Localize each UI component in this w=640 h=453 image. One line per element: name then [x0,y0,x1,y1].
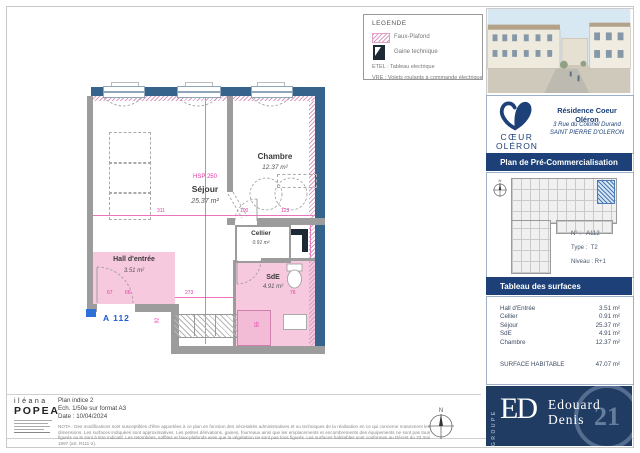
unit-info-label: Type : [571,245,587,251]
ed-monogram: ED [500,394,536,424]
titleblock-separator [7,394,481,395]
unit-info-value: A112 [586,231,600,237]
gaine-technique-legend-icon [373,45,385,60]
dim-label: 123 [281,209,289,214]
surfaces-banner: Tableau des surfaces [486,277,632,295]
cabinet-divider [194,314,195,336]
dimension-line [205,98,206,344]
washbasin [283,314,307,330]
unit-info-label: N° : [571,231,581,237]
surface-total-label: SURFACE HABITABLE [500,361,565,369]
surface-row: Cellier0.91 m² [500,313,620,321]
legend-etel: ETEL : Tableau electrique [372,64,435,70]
kitchen-counter [109,162,151,194]
surface-name: Cellier [500,313,518,321]
surface-value: 4.91 m² [599,330,620,338]
surface-name: Séjour [500,322,518,330]
window [103,86,145,98]
site-plan-box: N N° : A112 Type : T2 Niveau : R+1 [486,172,634,278]
unit-info-value: T2 [591,245,598,251]
west-wall [87,96,93,308]
legend-faux-plafond: Faux-Plafond [394,34,430,40]
site-plan-compass: N [491,177,509,199]
surface-value: 12.37 m² [596,339,620,347]
room-area-hall: 3.51 m² [95,268,173,274]
plan-banner-label: Plan de Pré-Commercialisation [500,158,618,167]
surface-row: SdE4.91 m² [500,330,620,338]
gaine-wedge [375,47,381,56]
chambre-door-opening [235,218,257,225]
wardrobe [277,174,317,188]
room-label-chambre: Chambre [235,152,315,161]
room-label-sejour: Séjour [165,184,245,194]
surface-total-value: 47.07 m² [596,361,620,369]
compass-n-label: N [499,178,502,183]
residence-address-line1: 3 Rue du Colonel Durand [545,122,629,128]
brand-name-line2: Denis [548,413,585,427]
sde-north-wall [261,258,315,261]
entrance-marker [86,309,96,317]
dim-label: 273 [185,291,193,296]
kitchen-counter [109,132,151,164]
surface-name: SdE [500,330,512,338]
plan-banner: Plan de Pré-Commercialisation [486,153,632,171]
residence-title-box: CŒUR OLÉRON Résidence Coeur Oléron 3 Rue… [486,95,634,154]
dim-label: 55 [255,322,260,328]
hsp-label: HSP 250 [165,174,245,180]
gaine-technique-icon [291,229,308,252]
architect-contact-line [14,423,48,424]
minimap-west-wing [511,220,551,274]
architect-contact-line [14,429,44,430]
surface-row: Chambre12.37 m² [500,339,620,347]
unit-info-row: Type : T2 [571,245,598,251]
surface-row: Séjour25.37 m² [500,322,620,330]
dim-label: 66 [125,291,131,296]
unit-info-value: R+1 [595,259,606,265]
kitchen-cabinets [173,314,239,338]
dim-label: 76 [290,291,296,296]
dim-label: 100 [240,209,248,214]
render-drawing [487,9,631,93]
coeur-wordmark-line2: OLÉRON [489,141,545,151]
legend-vre: VRE : Volets roulants à commande électri… [372,75,483,81]
architect-first-name: iléana [14,398,54,405]
dim-label: 92 [155,318,160,324]
groupe-vertical-label: GROUPE [491,386,497,446]
floor-plan: A 112 HS [85,82,337,376]
surface-total-row: SURFACE HABITABLE47.07 m² [500,361,620,369]
residence-address-line2: SAINT PIERRE D'OLERON [545,130,629,136]
room-area-cellier: 0.91 m² [237,240,285,246]
faux-plafond-swatch [372,33,390,43]
room-label-hall: Hall d'entrée [95,256,173,263]
coeur-oleron-heart-logo [495,99,539,133]
surfaces-banner-label: Tableau des surfaces [500,282,581,291]
compass-n-label: N [439,408,443,414]
dim-label: 67 [107,291,113,296]
room-area-chambre: 12.37 m² [235,164,315,171]
surface-value: 3.51 m² [599,305,620,313]
architect-contact-line [14,420,52,421]
room-label-cellier: Cellier [237,230,285,237]
south-wall [171,346,325,354]
architect-contact-line [14,426,50,427]
window [251,86,293,98]
legend-gaine: Gaine technique [394,49,438,55]
site-plan-minimap [511,178,615,272]
edouard-denis-logo: 21 GROUPE ED Edouard Denis [486,386,632,446]
room-label-sde: SdE [243,274,303,281]
room-area-sejour: 25.37 m² [165,198,245,205]
compass-needle [439,414,443,426]
nota-disclaimer: NOTA : Des modifications sont susceptibl… [58,424,430,446]
surface-row: Hall d'Entrée3.51 m² [500,305,620,313]
kitchen-counter [109,192,151,220]
window [177,86,221,98]
plan-meta: Plan indice 2 Ech. 1/50e sur format A3 D… [58,397,126,421]
surface-value: 25.37 m² [596,322,620,330]
unit-info-row: N° : A112 [571,231,600,237]
shower [237,310,271,346]
legend-title: LEGENDE [372,20,407,27]
drawing-sheet: A 112 HS [0,0,640,453]
unit-number-label: A 112 [103,313,130,323]
architect-contact-line [14,432,50,433]
surface-name: Hall d'Entrée [500,305,535,313]
architect-logo: iléana POPEA [14,398,54,433]
cabinet-divider [215,314,216,336]
architect-last-name: POPEA [14,405,54,417]
unit-info-label: Niveau : [571,259,593,265]
surfaces-table: Hall d'Entrée3.51 m² Cellier0.91 m² Séjo… [486,296,634,385]
legend-box: LEGENDE Faux-Plafond Gaine technique ETE… [363,14,483,80]
surface-value: 0.91 m² [599,313,620,321]
residence-render-image [486,8,634,96]
unit-info-row: Niveau : R+1 [571,259,606,265]
entrance-door-opening [97,304,135,312]
dim-label: 311 [157,209,165,214]
plan-date: Date : 10/04/2024 [58,413,126,421]
brand-name-line1: Edouard [548,398,601,412]
surface-name: Chambre [500,339,525,347]
plan-scale: Ech. 1/50e sur format A3 [58,405,126,413]
plan-index: Plan indice 2 [58,397,126,405]
minimap-highlighted-unit [597,180,615,204]
